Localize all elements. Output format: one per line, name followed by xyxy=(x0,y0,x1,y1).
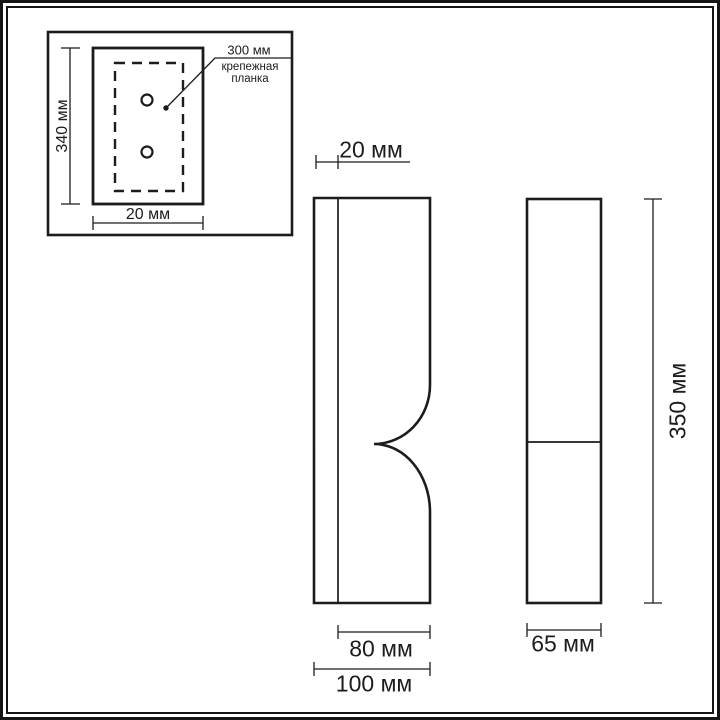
mounting-bracket-callout-label: крепежная планка xyxy=(211,61,289,85)
mounting-hole-bottom xyxy=(142,147,153,158)
side-height-label: 350 мм xyxy=(667,363,690,439)
inset-height-label: 340 мм xyxy=(55,99,71,152)
side-width-label: 65 мм xyxy=(531,633,595,656)
inset-hole-spacing-label: 300 мм xyxy=(227,44,270,57)
mounting-plate-outline xyxy=(93,48,203,204)
front-outer-width-label: 100 мм xyxy=(336,673,412,696)
mounting-bracket-dashed-outline xyxy=(115,63,183,191)
inset-width-label: 20 мм xyxy=(126,207,170,223)
drawing-linework xyxy=(0,0,720,720)
front-top-width-label: 20 мм xyxy=(339,139,403,162)
front-inner-width-label: 80 мм xyxy=(349,638,413,661)
front-view-outline xyxy=(314,198,430,603)
technical-drawing-canvas: 340 мм 20 мм 300 мм крепежная планка 20 … xyxy=(0,0,720,720)
mounting-hole-top xyxy=(142,95,153,106)
side-view-outline xyxy=(527,199,601,603)
